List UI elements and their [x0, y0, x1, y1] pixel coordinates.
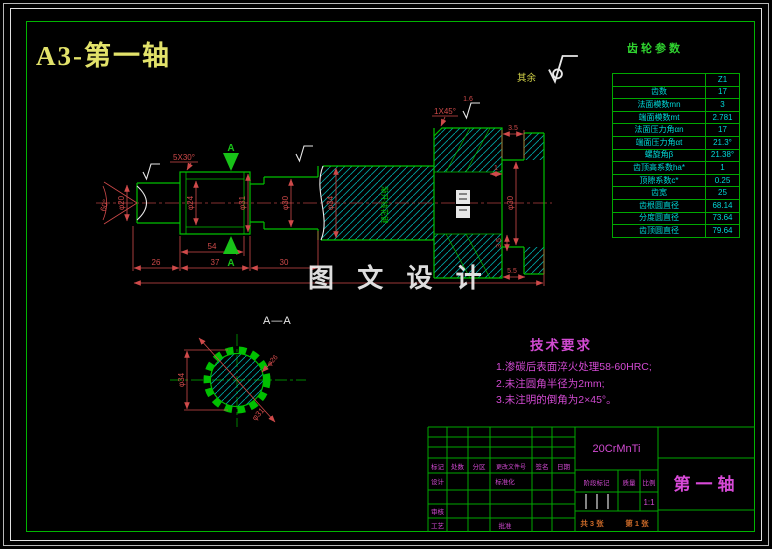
roughness-icon	[463, 103, 480, 118]
dim-phi20: φ20	[117, 195, 126, 210]
title-block: 标记 处数 分区 更改文件号 签名 日期 设计 标准化 审核 工艺 批准 20C…	[428, 427, 755, 532]
material-label: 20CrMnTi	[593, 443, 641, 455]
rest-label: 其余	[517, 72, 537, 84]
col-label-count: 处数	[451, 462, 465, 471]
spline-note: 渐开线花键	[380, 186, 390, 224]
col-label-signature: 签名	[536, 462, 549, 471]
dim-phi34: φ34	[326, 195, 335, 210]
chamfer-1x45: 1X45°	[434, 107, 456, 116]
dim-phi31: φ31	[238, 195, 247, 210]
col-label-mark: 标记	[431, 462, 445, 471]
roughness-icon	[296, 146, 313, 161]
stage-mark-dividers	[586, 494, 608, 509]
sheet-index: 第 1 张	[625, 518, 649, 528]
row-label-check: 审核	[431, 507, 445, 516]
label-block	[456, 206, 470, 218]
drawing-canvas: 60° φ20 5X30° φ24 φ31 φ30 φ34 54 26 37 3…	[0, 0, 772, 549]
cad-screenshot: { "title": "A3-第一轴", "gear_table": { "ti…	[0, 0, 772, 549]
row-label-craft: 工艺	[431, 522, 445, 530]
row-label-design: 设计	[431, 477, 445, 486]
roughness-rest-icon	[549, 56, 578, 82]
row-label-approve: 批准	[499, 521, 513, 530]
section-cut-marks: A A	[227, 143, 234, 269]
section-view-title: A—A	[263, 315, 292, 327]
stage-label: 阶段标记	[584, 478, 611, 487]
section-dim-phi34: φ34	[177, 372, 186, 387]
dim-phi30: φ30	[281, 195, 290, 210]
dim-3-5-right: 3.5	[496, 238, 503, 248]
col-label-date: 日期	[557, 463, 571, 471]
section-marker-top: A	[227, 143, 234, 154]
sheets-total: 共 3 张	[580, 518, 604, 528]
dim-phi24: φ24	[186, 195, 195, 210]
dim-3-5-top: 3.5	[508, 125, 518, 132]
dim-cone-angle: 60°	[99, 198, 111, 212]
dim-54: 54	[208, 242, 217, 251]
part-name: 第一轴	[674, 474, 740, 494]
section-view: A—A φ34 φ31 φ26	[170, 315, 306, 427]
dim-1: 1	[494, 165, 498, 172]
dim-5-5: 5.5	[507, 268, 517, 275]
section-marker-bottom: A	[227, 258, 234, 269]
roughness-icon	[143, 164, 160, 179]
watermark: 图 文 设 计	[308, 263, 490, 293]
col-label-change-doc: 更改文件号	[496, 463, 526, 471]
scale-value: 1:1	[643, 498, 655, 507]
scale-label: 比例	[643, 478, 656, 487]
chamfer-5x30: 5X30°	[173, 153, 195, 162]
dim-30: 30	[280, 258, 289, 267]
label-block	[456, 190, 470, 204]
mass-label: 质量	[623, 478, 637, 487]
dim-phi30-right: φ30	[506, 195, 515, 210]
dim-26: 26	[152, 258, 161, 267]
row-label-standard: 标准化	[495, 477, 515, 486]
col-label-zone: 分区	[473, 462, 487, 471]
roughness-1-6: 1.6	[463, 96, 473, 103]
dim-37: 37	[211, 258, 220, 267]
section-dim-phi26: φ26	[266, 354, 280, 368]
